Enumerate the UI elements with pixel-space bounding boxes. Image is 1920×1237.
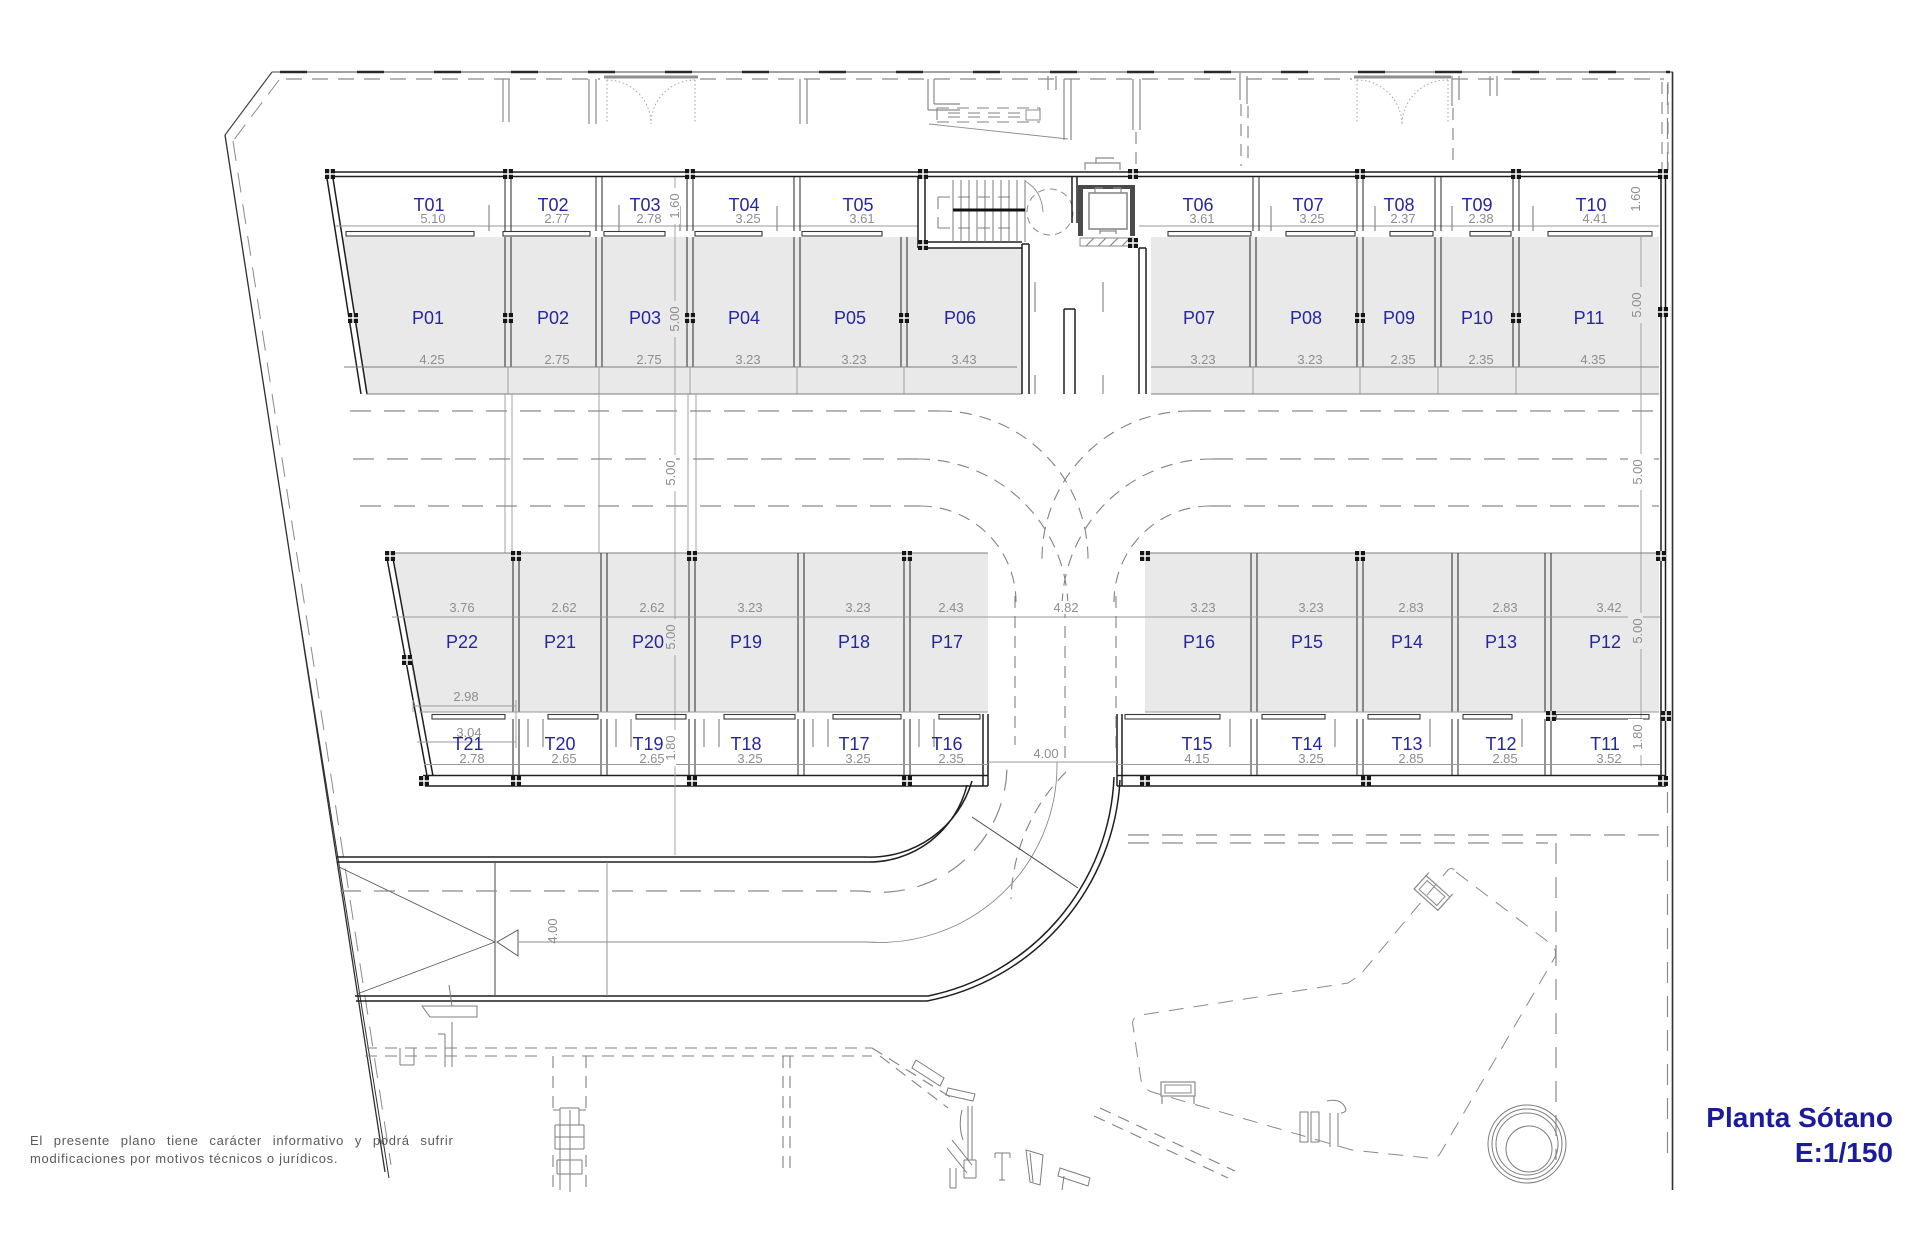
svg-text:2.65: 2.65 — [639, 751, 664, 766]
svg-text:5.00: 5.00 — [1629, 292, 1644, 317]
svg-text:P03: P03 — [629, 308, 661, 328]
svg-text:P02: P02 — [537, 308, 569, 328]
svg-text:1.60: 1.60 — [1628, 186, 1643, 211]
svg-text:P11: P11 — [1574, 308, 1605, 328]
svg-text:3.23: 3.23 — [1298, 600, 1323, 615]
svg-text:2.85: 2.85 — [1398, 751, 1423, 766]
svg-text:3.25: 3.25 — [845, 751, 870, 766]
svg-text:3.23: 3.23 — [1190, 352, 1215, 367]
svg-text:2.65: 2.65 — [551, 751, 576, 766]
svg-text:5.00: 5.00 — [663, 460, 678, 485]
svg-text:3.23: 3.23 — [841, 352, 866, 367]
svg-text:3.23: 3.23 — [737, 600, 762, 615]
svg-text:3.23: 3.23 — [845, 600, 870, 615]
svg-text:2.62: 2.62 — [551, 600, 576, 615]
svg-text:2.35: 2.35 — [1390, 352, 1415, 367]
svg-text:3.61: 3.61 — [1189, 211, 1214, 226]
svg-text:P19: P19 — [730, 632, 762, 652]
svg-text:5.00: 5.00 — [663, 624, 678, 649]
svg-text:P20: P20 — [632, 632, 664, 652]
svg-text:P15: P15 — [1291, 632, 1323, 652]
svg-text:P18: P18 — [838, 632, 870, 652]
svg-text:2.85: 2.85 — [1492, 751, 1517, 766]
svg-text:P08: P08 — [1290, 308, 1322, 328]
svg-text:3.76: 3.76 — [449, 600, 474, 615]
svg-text:4.25: 4.25 — [419, 352, 444, 367]
svg-text:3.52: 3.52 — [1596, 751, 1621, 766]
svg-text:P07: P07 — [1183, 308, 1215, 328]
svg-text:3.61: 3.61 — [849, 211, 874, 226]
svg-text:P05: P05 — [834, 308, 866, 328]
svg-text:4.41: 4.41 — [1582, 211, 1607, 226]
svg-text:5.10: 5.10 — [420, 211, 445, 226]
svg-text:3.43: 3.43 — [951, 352, 976, 367]
svg-text:1.80: 1.80 — [663, 735, 678, 760]
svg-text:modificaciones por motivos téc: modificaciones por motivos técnicos o ju… — [30, 1151, 338, 1166]
svg-text:2.78: 2.78 — [459, 751, 484, 766]
svg-text:P13: P13 — [1485, 632, 1517, 652]
svg-text:P14: P14 — [1391, 632, 1423, 652]
svg-text:2.75: 2.75 — [544, 352, 569, 367]
svg-text:3.23: 3.23 — [1190, 600, 1215, 615]
svg-text:2.77: 2.77 — [544, 211, 569, 226]
svg-text:1.80: 1.80 — [1630, 724, 1645, 749]
svg-text:3.23: 3.23 — [735, 352, 760, 367]
svg-text:P04: P04 — [728, 308, 760, 328]
svg-text:3.25: 3.25 — [1298, 751, 1323, 766]
svg-text:P01: P01 — [412, 308, 444, 328]
svg-text:5.00: 5.00 — [1630, 459, 1645, 484]
svg-text:2.78: 2.78 — [636, 211, 661, 226]
svg-text:4.00: 4.00 — [545, 918, 560, 943]
svg-text:2.35: 2.35 — [1468, 352, 1493, 367]
svg-text:4.82: 4.82 — [1053, 600, 1078, 615]
svg-text:2.37: 2.37 — [1390, 211, 1415, 226]
svg-text:4.35: 4.35 — [1580, 352, 1605, 367]
svg-text:P22: P22 — [446, 632, 478, 652]
svg-text:2.83: 2.83 — [1492, 600, 1517, 615]
svg-text:P21: P21 — [544, 632, 576, 652]
svg-text:El presente plano tiene caráct: El presente plano tiene carácter informa… — [30, 1133, 454, 1148]
svg-text:E:1/150: E:1/150 — [1795, 1137, 1893, 1168]
svg-text:P09: P09 — [1383, 308, 1415, 328]
svg-text:3.42: 3.42 — [1596, 600, 1621, 615]
svg-text:3.25: 3.25 — [1299, 211, 1324, 226]
svg-text:P06: P06 — [944, 308, 976, 328]
svg-text:2.38: 2.38 — [1468, 211, 1493, 226]
svg-text:5.00: 5.00 — [667, 306, 682, 331]
svg-text:2.62: 2.62 — [639, 600, 664, 615]
svg-text:3.25: 3.25 — [737, 751, 762, 766]
svg-text:3.23: 3.23 — [1297, 352, 1322, 367]
svg-text:P17: P17 — [931, 632, 963, 652]
svg-text:5.00: 5.00 — [1630, 618, 1645, 643]
svg-text:P16: P16 — [1183, 632, 1215, 652]
svg-text:Planta Sótano: Planta Sótano — [1706, 1102, 1893, 1133]
svg-text:2.75: 2.75 — [636, 352, 661, 367]
svg-text:P10: P10 — [1461, 308, 1493, 328]
svg-text:P12: P12 — [1589, 632, 1621, 652]
svg-text:2.43: 2.43 — [938, 600, 963, 615]
svg-text:4.00: 4.00 — [1033, 746, 1058, 761]
svg-text:2.35: 2.35 — [938, 751, 963, 766]
svg-text:1.60: 1.60 — [667, 193, 682, 218]
svg-text:2.83: 2.83 — [1398, 600, 1423, 615]
svg-text:2.98: 2.98 — [453, 689, 478, 704]
svg-text:3.25: 3.25 — [735, 211, 760, 226]
svg-text:4.15: 4.15 — [1184, 751, 1209, 766]
